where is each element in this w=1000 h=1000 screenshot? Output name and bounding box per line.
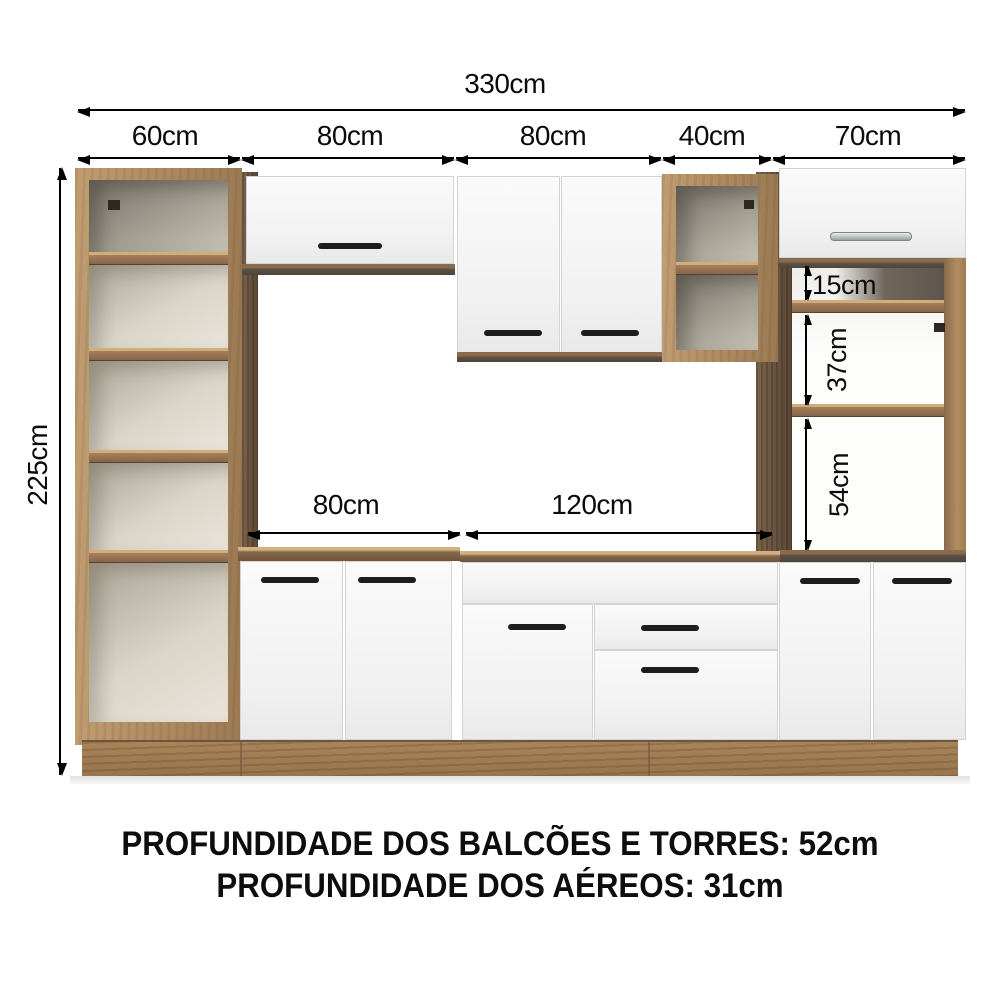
section-width-label-60: 60cm (95, 122, 235, 150)
hinge-mark (108, 200, 120, 210)
left-tower-compartment-3 (89, 360, 228, 450)
right-tower-left-door-handle (800, 578, 860, 584)
upper-cabinet-left-door (457, 176, 560, 353)
base-80-right-handle (358, 577, 416, 583)
left-tower-compartment-2 (89, 264, 228, 348)
depth-note-aereos: PROFUNDIDADE DOS AÉREOS: 31cm (40, 868, 960, 904)
section-arrow-40 (663, 157, 771, 159)
right-tower-counter-strip (779, 550, 966, 562)
plinth (82, 740, 958, 778)
hinge-mark (934, 323, 945, 332)
section-arrow-80b (456, 157, 661, 159)
sink-cabinet-drawer-2 (594, 650, 778, 740)
counter-arrow-120 (466, 532, 772, 534)
section-arrow-60 (78, 157, 240, 159)
section-width-label-70: 70cm (798, 122, 938, 150)
right-tower-right-panel (944, 258, 966, 550)
right-tower-shelf-1 (792, 300, 944, 313)
left-tower-compartment-5 (89, 562, 228, 722)
sink-cabinet-door-handle (508, 624, 566, 630)
base-80-left-door (240, 561, 343, 740)
ground-shadow (70, 776, 970, 784)
total-width-arrow (78, 109, 965, 111)
depth-note-balcoes-torres: PROFUNDIDADE DOS BALCÕES E TORRES: 52cm (40, 826, 960, 862)
right-tower-right-door-handle (892, 578, 952, 584)
gap-label-37: 37cm (824, 290, 852, 430)
right-tower-left-door (779, 562, 871, 740)
upper-cabinet-bottom (457, 352, 663, 362)
left-tower-compartment-1 (89, 180, 228, 252)
sink-false-front (462, 562, 778, 604)
sink-drawer-1-handle (641, 625, 699, 631)
section-width-label-80b: 80cm (483, 122, 623, 150)
upper-flip-cabinet-bottom (242, 264, 455, 275)
plinth-seam (648, 742, 650, 776)
right-tower-shelf-2 (792, 404, 944, 417)
counter-width-label-120: 120cm (512, 491, 672, 519)
base-80-right-door (345, 561, 452, 740)
upper-flip-cabinet-door (246, 176, 454, 264)
upper-cabinet-right-door (561, 176, 662, 353)
upper-cabinet-left-handle (484, 330, 542, 336)
upper-flip-cabinet-handle (318, 243, 382, 249)
niche-compartment-top (676, 186, 758, 262)
left-tower-shelf-2 (89, 348, 228, 361)
right-tower-flip-handle (830, 232, 912, 241)
plinth-seam (240, 742, 242, 776)
height-arrow (59, 168, 61, 775)
left-tower-shelf-1 (89, 252, 228, 265)
counter-arrow-80 (248, 532, 460, 534)
gap-arrow-15 (805, 266, 807, 300)
upper-cabinet-right-handle (581, 330, 639, 336)
gap-arrow-37 (805, 315, 807, 405)
section-arrow-80a (242, 157, 454, 159)
hinge-mark (744, 200, 754, 209)
niche-shelf (676, 262, 758, 275)
sink-drawer-2-handle (641, 667, 699, 673)
section-width-label-80a: 80cm (280, 122, 420, 150)
left-tower-shelf-3 (89, 450, 228, 463)
left-tower-shelf-4 (89, 550, 228, 563)
sink-countertop (460, 551, 780, 562)
right-tower-flip-door (779, 168, 966, 258)
section-width-label-40: 40cm (642, 122, 782, 150)
niche-compartment-bottom (676, 274, 758, 350)
base-80-left-handle (261, 577, 319, 583)
right-tower-right-door (873, 562, 966, 740)
gap-label-54: 54cm (826, 415, 854, 555)
gap-arrow-54 (805, 419, 807, 550)
base-80-countertop (238, 547, 460, 561)
total-width-label: 330cm (405, 70, 605, 98)
height-label: 225cm (24, 395, 52, 535)
left-tower-compartment-4 (89, 462, 228, 550)
section-arrow-70 (773, 157, 965, 159)
counter-width-label-80: 80cm (276, 491, 416, 519)
kitchen-dimension-diagram: 330cm 60cm 80cm 80cm 40cm 70cm 225cm 80c… (0, 0, 1000, 1000)
